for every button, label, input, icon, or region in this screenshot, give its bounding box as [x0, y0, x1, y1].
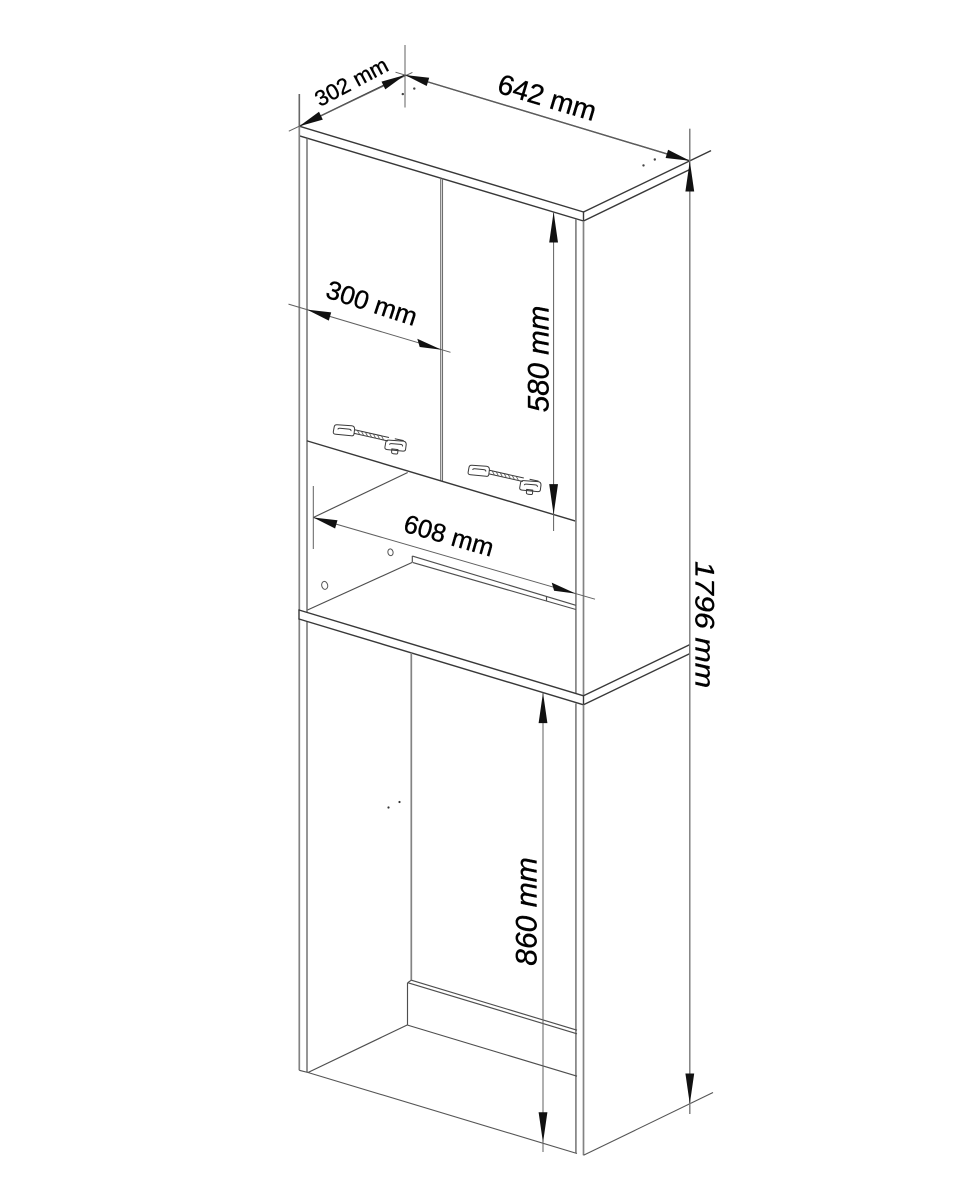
- svg-text:580 mm: 580 mm: [523, 306, 556, 413]
- svg-text:1796 mm: 1796 mm: [689, 561, 719, 688]
- svg-text:860 mm: 860 mm: [511, 857, 544, 965]
